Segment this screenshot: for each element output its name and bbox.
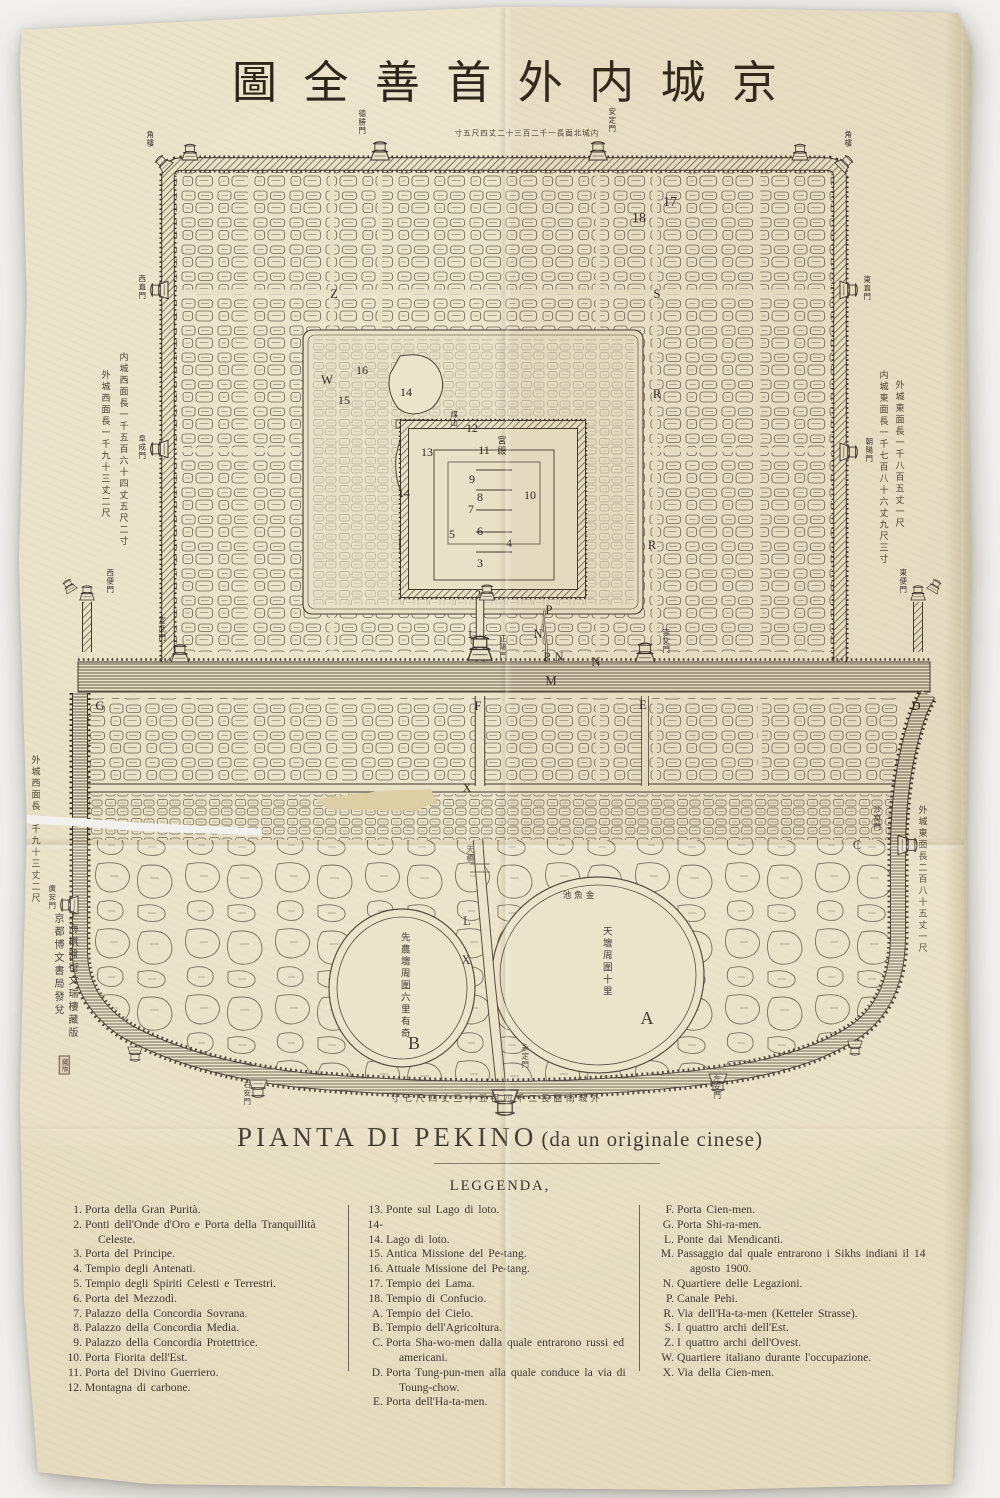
legend-item-text: Ponte sul Lago di loto. <box>386 1203 499 1216</box>
legend-column-3: F.Porta Cien-men.G.Porta Shi-ra-men.L.Po… <box>646 1203 950 1410</box>
cjk-map-title: 圖全善首外内城京 <box>232 60 777 105</box>
cjk-title-char: 圖 <box>232 60 277 105</box>
legend-heading: LEGGENDA, <box>0 1178 1000 1195</box>
legend-item-label: N. <box>646 1277 674 1292</box>
legend-item-text: Tempio degli Antenati. <box>85 1262 195 1275</box>
caption-rule <box>434 1163 660 1164</box>
legend-item-label: P. <box>646 1292 674 1307</box>
legend-item-text: Via dell'Ha-ta-men (Ketteler Strasse). <box>677 1307 858 1320</box>
temple-of-agriculture <box>329 909 475 1067</box>
legend-item-text: Porta Cien-men. <box>677 1203 755 1216</box>
legend-item-label: 13. <box>355 1203 383 1218</box>
cjk-title-char: 城 <box>661 60 706 105</box>
legend-item-text: Porta della Gran Purità. <box>85 1203 200 1216</box>
legend-item-label: L. <box>646 1233 674 1248</box>
legend-item-label: 11. <box>54 1366 82 1381</box>
legend-item-label: 8. <box>54 1321 82 1336</box>
legend-item: 2.Ponti dell'Onde d'Oro e Porta della Tr… <box>54 1218 342 1248</box>
legend-item-label: B. <box>355 1321 383 1336</box>
legend-item-text: Palazzo della Concordia Media. <box>85 1321 239 1334</box>
legend-item-text: Via della Cien-men. <box>677 1366 774 1379</box>
legend-item: S.I quattro archi dell'Est. <box>646 1321 950 1336</box>
legend-item-text: Porta del Mezzodì. <box>85 1292 177 1305</box>
legend-item-text: Porta Fiorita dell'Est. <box>85 1351 187 1364</box>
photo-backdrop: 圖全善首外内城京 12345678910111213141415161718WR… <box>0 0 1000 1498</box>
map-caption: PIANTA DI PEKINO (da un originale cinese… <box>0 1122 1000 1153</box>
legend-item-text: Porta dell'Ha-ta-men. <box>386 1395 487 1408</box>
legend-item-label: 10. <box>54 1351 82 1366</box>
legend-item-label: 17. <box>355 1277 383 1292</box>
legend-item-text: Montagna di carbone. <box>85 1381 190 1394</box>
legend-item-label: Z. <box>646 1336 674 1351</box>
legend-item: X.Via della Cien-men. <box>646 1366 950 1381</box>
legend-item-label: 5. <box>54 1277 82 1292</box>
legend-item: R.Via dell'Ha-ta-men (Ketteler Strasse). <box>646 1307 950 1322</box>
legend-item: 14-14.Lago di loto. <box>355 1218 633 1248</box>
legend-item-label: 7. <box>54 1307 82 1322</box>
legend-item: 7.Palazzo della Concordia Sovrana. <box>54 1307 342 1322</box>
legend-item-text: Porta Tung-pun-men alla quale conduce la… <box>386 1366 626 1394</box>
legend-item-text: Antica Missione del Pe-tang. <box>386 1247 527 1260</box>
legend-item: 16.Attuale Missione del Pe-tang. <box>355 1262 633 1277</box>
legend-item: 1.Porta della Gran Purità. <box>54 1203 342 1218</box>
legend-item-text: Tempio degli Spiriti Celesti e Terrestri… <box>85 1277 276 1290</box>
legend-item-label: E. <box>355 1395 383 1410</box>
legend-item-text: Porta Sha-wo-men dalla quale entrarono r… <box>386 1336 624 1364</box>
legend-item-label: C. <box>355 1336 383 1351</box>
legend-item: 13.Ponte sul Lago di loto. <box>355 1203 633 1218</box>
legend-item-text: Tempio di Confucio. <box>386 1292 486 1305</box>
legend-item: A.Tempio del Cielo. <box>355 1307 633 1322</box>
legend-item-label: F. <box>646 1203 674 1218</box>
legend-item-label: 2. <box>54 1218 82 1233</box>
legend-divider <box>348 1205 349 1371</box>
legend-item: 6.Porta del Mezzodì. <box>54 1292 342 1307</box>
legend-item-text: Canale Pehi. <box>677 1292 738 1305</box>
legend-divider <box>639 1205 640 1371</box>
legend-item-text: Tempio dei Lama. <box>386 1277 475 1290</box>
forbidden-city <box>400 420 586 598</box>
legend-item: 5.Tempio degli Spiriti Celesti e Terrest… <box>54 1277 342 1292</box>
map-sheet-wrap: 圖全善首外内城京 12345678910111213141415161718WR… <box>0 0 1000 1498</box>
legend-item-text: Tempio dell'Agricoltura. <box>386 1321 502 1334</box>
legend: 1.Porta della Gran Purità.2.Ponti dell'O… <box>54 1203 950 1410</box>
legend-item-text: Porta del Divino Guerriero. <box>85 1366 219 1379</box>
cjk-title-char: 外 <box>518 60 563 105</box>
cjk-title-char: 全 <box>303 60 348 105</box>
cjk-title-char: 首 <box>446 60 491 105</box>
legend-item: L.Ponte dai Mendicanti. <box>646 1233 950 1248</box>
legend-item: Z.I quattro archi dell'Ovest. <box>646 1336 950 1351</box>
legend-item-text: Quartiere delle Legazioni. <box>677 1277 802 1290</box>
legend-item: M.Passaggio dal quale entrarono i Sikhs … <box>646 1247 950 1277</box>
legend-item: F.Porta Cien-men. <box>646 1203 950 1218</box>
legend-item: 11.Porta del Divino Guerriero. <box>54 1366 342 1381</box>
cjk-title-char: 内 <box>589 60 634 105</box>
legend-item-text: Tempio del Cielo. <box>386 1307 473 1320</box>
legend-item-label: W. <box>646 1351 674 1366</box>
legend-item: D.Porta Tung-pun-men alla quale conduce … <box>355 1366 633 1396</box>
legend-item-label: 1. <box>54 1203 82 1218</box>
legend-item: N.Quartiere delle Legazioni. <box>646 1277 950 1292</box>
legend-item: 3.Porta del Principe. <box>54 1247 342 1262</box>
cjk-title-char: 善 <box>375 60 420 105</box>
legend-item-label: R. <box>646 1307 674 1322</box>
legend-item: 10.Porta Fiorita dell'Est. <box>54 1351 342 1366</box>
legend-item-label: 3. <box>54 1247 82 1262</box>
legend-item: 12.Montagna di carbone. <box>54 1381 342 1396</box>
legend-item-text: Passaggio dal quale entrarono i Sikhs in… <box>677 1247 926 1275</box>
caption-subtitle: (da un originale cinese) <box>541 1127 763 1151</box>
legend-item-label: 15. <box>355 1247 383 1262</box>
legend-item-text: Lago di loto. <box>386 1233 450 1246</box>
legend-item: 18.Tempio di Confucio. <box>355 1292 633 1307</box>
legend-item-label: 14-14. <box>355 1218 383 1248</box>
temple-of-heaven <box>492 877 704 1073</box>
legend-item-text: Quartiere italiano durante l'occupazione… <box>677 1351 871 1364</box>
legend-item-label: 12. <box>54 1381 82 1396</box>
legend-item-label: G. <box>646 1218 674 1233</box>
legend-item: G.Porta Shi-ra-men. <box>646 1218 950 1233</box>
legend-item: 8.Palazzo della Concordia Media. <box>54 1321 342 1336</box>
legend-item: 17.Tempio dei Lama. <box>355 1277 633 1292</box>
legend-item: 4.Tempio degli Antenati. <box>54 1262 342 1277</box>
legend-item-text: Ponte dai Mendicanti. <box>677 1233 783 1246</box>
legend-item: 9.Palazzo della Concordia Protettrice. <box>54 1336 342 1351</box>
legend-item: 15.Antica Missione del Pe-tang. <box>355 1247 633 1262</box>
legend-item-label: 4. <box>54 1262 82 1277</box>
legend-column-1: 1.Porta della Gran Purità.2.Ponti dell'O… <box>54 1203 342 1410</box>
legend-item-label: X. <box>646 1366 674 1381</box>
legend-item-text: I quattro archi dell'Est. <box>677 1321 789 1334</box>
legend-item: C.Porta Sha-wo-men dalla quale entrarono… <box>355 1336 633 1366</box>
legend-column-2: 13.Ponte sul Lago di loto.14-14.Lago di … <box>355 1203 633 1410</box>
legend-item-text: Ponti dell'Onde d'Oro e Porta della Tran… <box>85 1218 316 1246</box>
legend-item-text: I quattro archi dell'Ovest. <box>677 1336 801 1349</box>
legend-item-label: M. <box>646 1247 674 1262</box>
legend-item: E.Porta dell'Ha-ta-men. <box>355 1395 633 1410</box>
cjk-title-char: 京 <box>732 60 777 105</box>
legend-item-label: 18. <box>355 1292 383 1307</box>
legend-item-text: Attuale Missione del Pe-tang. <box>386 1262 530 1275</box>
legend-item-label: A. <box>355 1307 383 1322</box>
legend-item: W.Quartiere italiano durante l'occupazio… <box>646 1351 950 1366</box>
legend-item: B.Tempio dell'Agricoltura. <box>355 1321 633 1336</box>
caption-title: PIANTA DI PEKINO <box>237 1122 537 1152</box>
legend-item-label: D. <box>355 1366 383 1381</box>
legend-item-label: S. <box>646 1321 674 1336</box>
legend-item-label: 9. <box>54 1336 82 1351</box>
legend-item-text: Porta del Principe. <box>85 1247 175 1260</box>
legend-item-label: 6. <box>54 1292 82 1307</box>
legend-item-label: 16. <box>355 1262 383 1277</box>
legend-item: P.Canale Pehi. <box>646 1292 950 1307</box>
legend-item-text: Palazzo della Concordia Sovrana. <box>85 1307 247 1320</box>
map-sheet: 圖全善首外内城京 12345678910111213141415161718WR… <box>0 0 1000 1498</box>
legend-item-text: Porta Shi-ra-men. <box>677 1218 761 1231</box>
legend-item-text: Palazzo della Concordia Protettrice. <box>85 1336 258 1349</box>
